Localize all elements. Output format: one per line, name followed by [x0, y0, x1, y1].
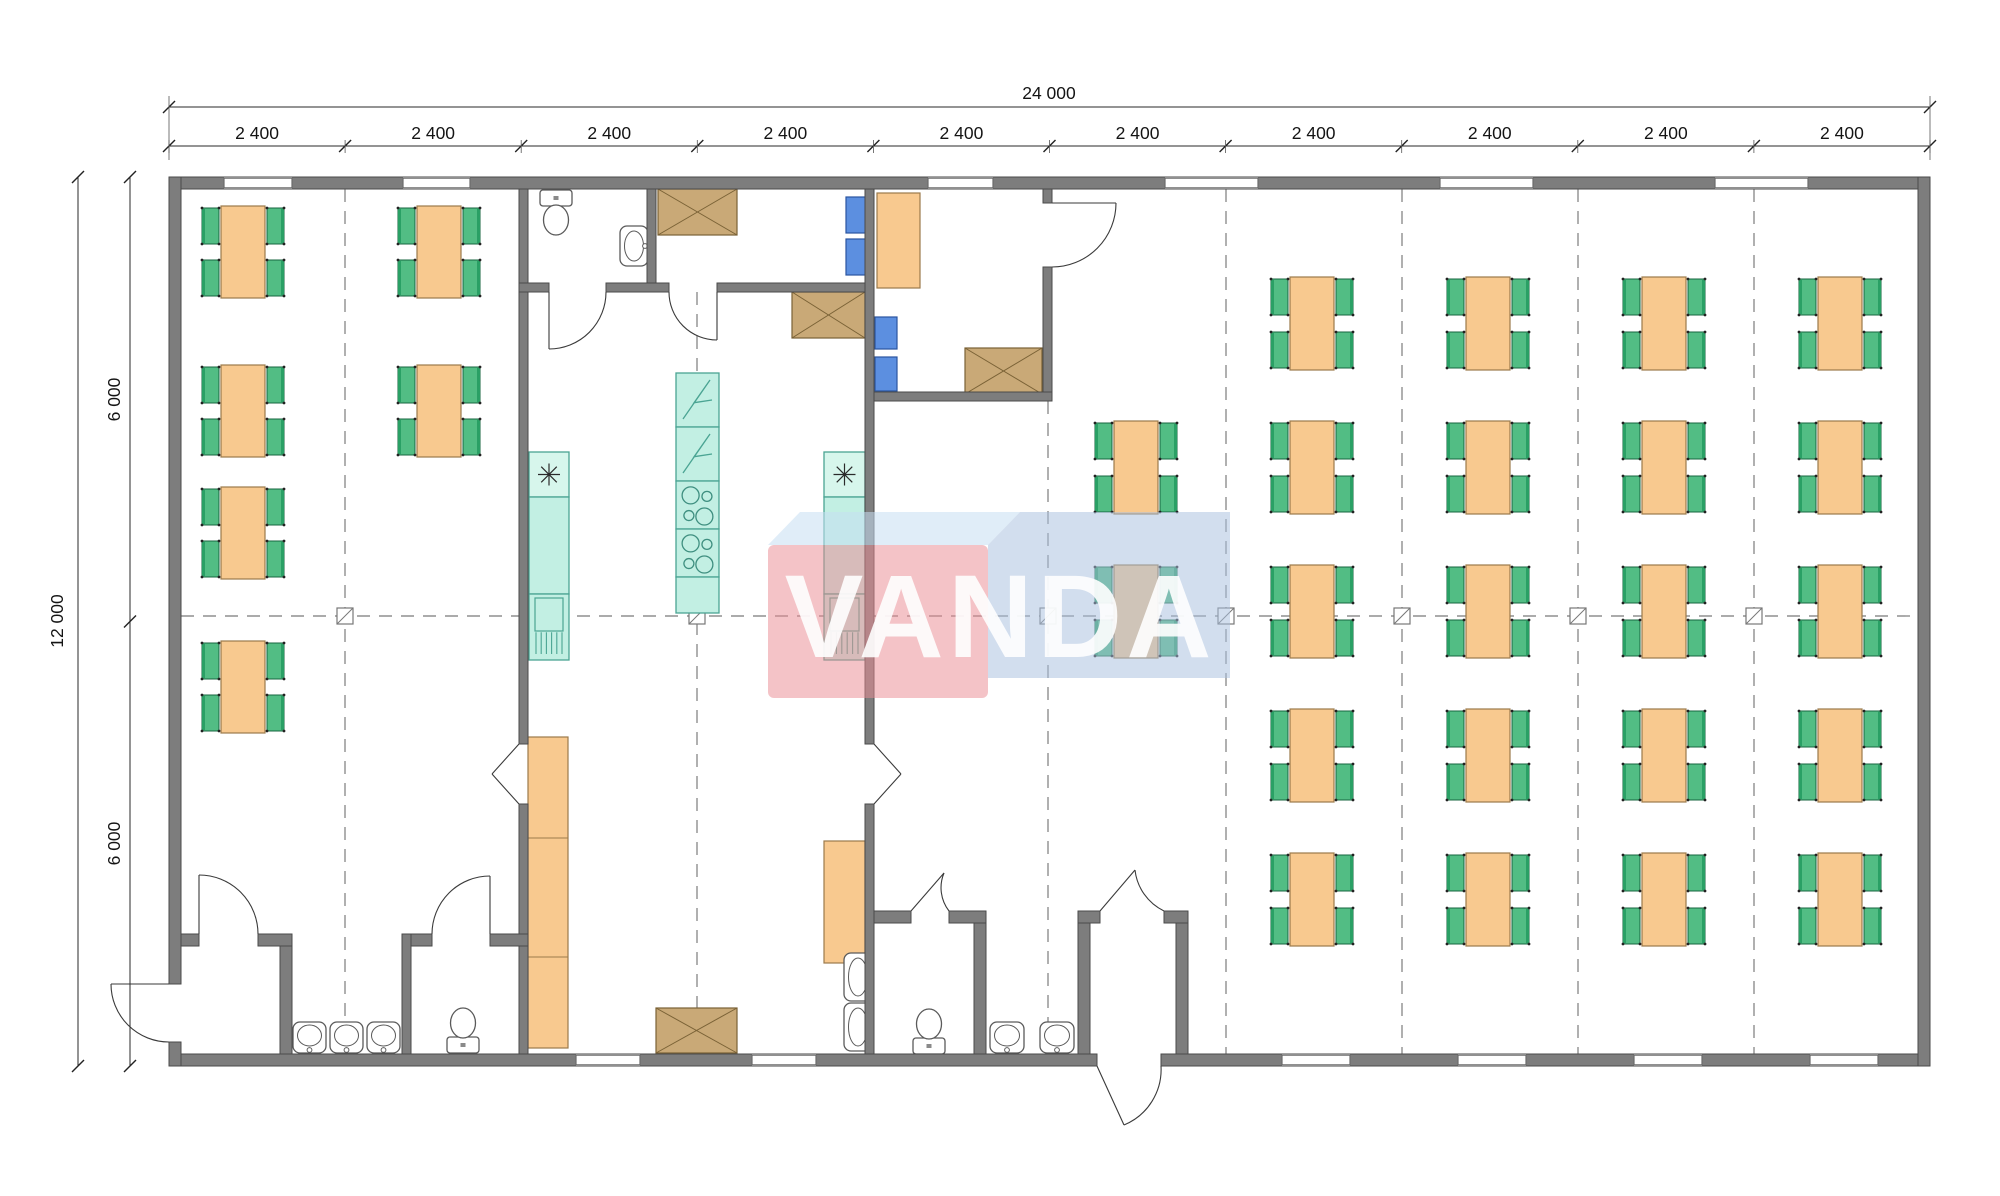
chair [462, 207, 482, 246]
appliance-star-unit [824, 452, 865, 497]
watermark-text: VANDA [785, 551, 1216, 683]
wall [411, 934, 432, 946]
chair [201, 259, 221, 298]
chair [1270, 278, 1290, 317]
chair [1798, 854, 1818, 893]
chair [1094, 422, 1114, 461]
chair [397, 366, 417, 405]
chair [1511, 422, 1531, 461]
dim-total-width-label: 24 000 [1022, 83, 1076, 103]
chair [201, 694, 221, 733]
dining-table [1466, 853, 1510, 946]
chair [1446, 619, 1466, 658]
window [752, 1054, 816, 1066]
chair [1335, 566, 1355, 605]
dining-table [221, 365, 265, 457]
chair [1270, 422, 1290, 461]
chair [1622, 278, 1642, 317]
dim-bay-label: 2 400 [411, 123, 455, 143]
wall [1918, 177, 1930, 1066]
chair [1863, 854, 1883, 893]
crossed-box [792, 292, 865, 338]
dim-bay-label: 2 400 [940, 123, 984, 143]
dining-table [1818, 709, 1862, 802]
dim-half-label: 6 000 [104, 821, 124, 865]
chair [1863, 475, 1883, 514]
crossed-box [656, 1008, 737, 1053]
dim-half-label: 6 000 [104, 377, 124, 421]
chair [462, 418, 482, 457]
dining-table [1466, 565, 1510, 658]
dining-table [1114, 421, 1158, 514]
chair [266, 366, 286, 405]
chair [1622, 907, 1642, 946]
wash-basin-symbol [367, 1022, 400, 1053]
crossed-box [965, 348, 1042, 394]
appliance-zig-unit [676, 427, 719, 481]
dining-table [1290, 565, 1334, 658]
chair [1687, 331, 1707, 370]
chair [266, 259, 286, 298]
chair [1798, 422, 1818, 461]
chair [1687, 763, 1707, 802]
chair [1798, 907, 1818, 946]
chair [1335, 422, 1355, 461]
dining-table [1818, 277, 1862, 370]
chair [1511, 907, 1531, 946]
appliance-plain-unit [529, 497, 569, 594]
wall [717, 283, 873, 292]
module-connector [1394, 608, 1410, 624]
wash-basin-symbol [1040, 1022, 1074, 1053]
dim-total-height-label: 12 000 [47, 594, 67, 648]
dining-table [1290, 277, 1334, 370]
chair [266, 418, 286, 457]
dining-table [1290, 853, 1334, 946]
blue-chair [846, 197, 866, 233]
wash-basin-symbol [990, 1022, 1024, 1053]
watermark-top-band [768, 512, 1020, 545]
wall [1176, 923, 1188, 1054]
chair [1798, 475, 1818, 514]
chair [397, 207, 417, 246]
chair [1798, 331, 1818, 370]
chair [1687, 710, 1707, 749]
chair [1270, 566, 1290, 605]
chair [1270, 854, 1290, 893]
dining-table [1642, 853, 1686, 946]
window [1810, 1054, 1878, 1066]
window [1165, 177, 1258, 189]
chair [1446, 907, 1466, 946]
window [1282, 1054, 1350, 1066]
floor-plan: 2 4002 4002 4002 4002 4002 4002 4002 400… [0, 0, 2000, 1196]
wc-symbol [540, 190, 572, 235]
chair [1798, 619, 1818, 658]
dining-table [1642, 277, 1686, 370]
chair [1798, 710, 1818, 749]
wc-symbol [913, 1009, 945, 1054]
chair [1622, 566, 1642, 605]
appliance-burner-unit [676, 529, 719, 577]
chair [1159, 422, 1179, 461]
dining-table [1466, 421, 1510, 514]
window [1634, 1054, 1702, 1066]
wall [949, 911, 986, 923]
dim-bay-label: 2 400 [1468, 123, 1512, 143]
chair [266, 694, 286, 733]
chair [1511, 763, 1531, 802]
chair [1863, 619, 1883, 658]
wall [519, 804, 528, 1054]
chair [201, 540, 221, 579]
chair [1511, 278, 1531, 317]
office-desk [877, 193, 920, 288]
blue-chair [875, 357, 897, 391]
chair [1446, 422, 1466, 461]
chair [1798, 763, 1818, 802]
dim-bay-label: 2 400 [1820, 123, 1864, 143]
blue-chair [846, 239, 866, 275]
wall [402, 934, 411, 1054]
chair [1798, 566, 1818, 605]
dim-bay-label: 2 400 [1292, 123, 1336, 143]
dining-table [1466, 709, 1510, 802]
chair [1446, 331, 1466, 370]
chair [1270, 475, 1290, 514]
chair [397, 259, 417, 298]
dining-table [1818, 421, 1862, 514]
dining-table [1466, 277, 1510, 370]
wall [1043, 189, 1052, 203]
chair [1863, 278, 1883, 317]
chair [1622, 710, 1642, 749]
dining-table [1642, 421, 1686, 514]
wash-basin-symbol [330, 1022, 363, 1053]
chair [397, 418, 417, 457]
wall [865, 804, 874, 1054]
window [928, 177, 993, 189]
chair [1798, 278, 1818, 317]
dim-bay-label: 2 400 [587, 123, 631, 143]
wash-basin-symbol [620, 226, 648, 266]
module-connector [337, 608, 353, 624]
wall [181, 934, 199, 946]
chair [1622, 763, 1642, 802]
chair [1687, 475, 1707, 514]
chair [1335, 331, 1355, 370]
dining-table [221, 206, 265, 298]
window [403, 177, 470, 189]
appliance-star-unit [529, 452, 569, 497]
chair [1687, 566, 1707, 605]
chair [1622, 331, 1642, 370]
chair [1335, 907, 1355, 946]
wash-basin-symbol [293, 1022, 326, 1053]
chair [1335, 619, 1355, 658]
wall [1164, 911, 1188, 923]
wall [647, 189, 656, 283]
chair [1687, 619, 1707, 658]
dim-bay-label: 2 400 [763, 123, 807, 143]
module-connector [1746, 608, 1762, 624]
chair [1511, 619, 1531, 658]
chair [1622, 854, 1642, 893]
window [576, 1054, 640, 1066]
window [224, 177, 292, 189]
wc-symbol [447, 1008, 479, 1053]
chair [1270, 907, 1290, 946]
window [1440, 177, 1533, 189]
chair [462, 366, 482, 405]
chair [1335, 763, 1355, 802]
wall [490, 934, 528, 946]
chair [1863, 763, 1883, 802]
wall [606, 283, 669, 292]
chair [1511, 710, 1531, 749]
dining-table [221, 487, 265, 579]
chair [201, 366, 221, 405]
dining-table [1642, 709, 1686, 802]
dim-bay-label: 2 400 [1116, 123, 1160, 143]
dining-table [417, 206, 461, 298]
appliance-plain-unit [676, 577, 719, 613]
chair [1622, 422, 1642, 461]
chair [266, 642, 286, 681]
chair [1446, 278, 1466, 317]
wall [1078, 911, 1100, 923]
chair [1863, 422, 1883, 461]
wall [258, 934, 292, 946]
chair [1863, 710, 1883, 749]
appliance-grill-unit [529, 594, 569, 660]
floor-plan-svg: 2 4002 4002 4002 4002 4002 4002 4002 400… [0, 0, 2000, 1196]
cabinet [824, 841, 865, 963]
chair [462, 259, 482, 298]
chair [201, 207, 221, 246]
wall [1043, 267, 1052, 392]
wall [974, 923, 986, 1054]
chair [1863, 566, 1883, 605]
wall [519, 189, 528, 744]
chair [1094, 475, 1114, 514]
chair [201, 642, 221, 681]
wall [280, 946, 292, 1054]
chair [1335, 278, 1355, 317]
chair [1687, 422, 1707, 461]
wall [169, 177, 181, 984]
chair [266, 488, 286, 527]
chair [266, 207, 286, 246]
appliance-zig-unit [676, 373, 719, 427]
chair [201, 488, 221, 527]
chair [1511, 854, 1531, 893]
chair [1863, 907, 1883, 946]
wall [169, 1042, 181, 1066]
chair [1270, 763, 1290, 802]
chair [1511, 566, 1531, 605]
crossed-box [658, 189, 737, 235]
chair [1270, 710, 1290, 749]
chair [1335, 475, 1355, 514]
chair [1446, 710, 1466, 749]
chair [1511, 331, 1531, 370]
chair [1159, 475, 1179, 514]
chair [1446, 763, 1466, 802]
chair [1687, 854, 1707, 893]
dining-table [1818, 853, 1862, 946]
chair [1335, 854, 1355, 893]
cabinet [528, 737, 568, 1048]
wall [874, 392, 1052, 401]
chair [1446, 475, 1466, 514]
dim-bay-label: 2 400 [235, 123, 279, 143]
dining-table [221, 641, 265, 733]
chair [1446, 566, 1466, 605]
chair [1687, 907, 1707, 946]
chair [266, 540, 286, 579]
chair [1270, 331, 1290, 370]
module-connector [1570, 608, 1586, 624]
dining-table [1290, 421, 1334, 514]
window [1715, 177, 1808, 189]
chair [1270, 619, 1290, 658]
dining-table [1642, 565, 1686, 658]
blue-chair [875, 317, 897, 349]
dim-bay-label: 2 400 [1644, 123, 1688, 143]
window [1458, 1054, 1526, 1066]
chair [1622, 475, 1642, 514]
dining-table [1290, 709, 1334, 802]
wall [874, 911, 911, 923]
wall [519, 283, 549, 292]
chair [1687, 278, 1707, 317]
chair [1622, 619, 1642, 658]
chair [1335, 710, 1355, 749]
dining-table [417, 365, 461, 457]
chair [1446, 854, 1466, 893]
dining-table [1818, 565, 1862, 658]
wall [1078, 923, 1090, 1054]
chair [1863, 331, 1883, 370]
chair [1511, 475, 1531, 514]
chair [201, 418, 221, 457]
appliance-burner-unit [676, 481, 719, 529]
